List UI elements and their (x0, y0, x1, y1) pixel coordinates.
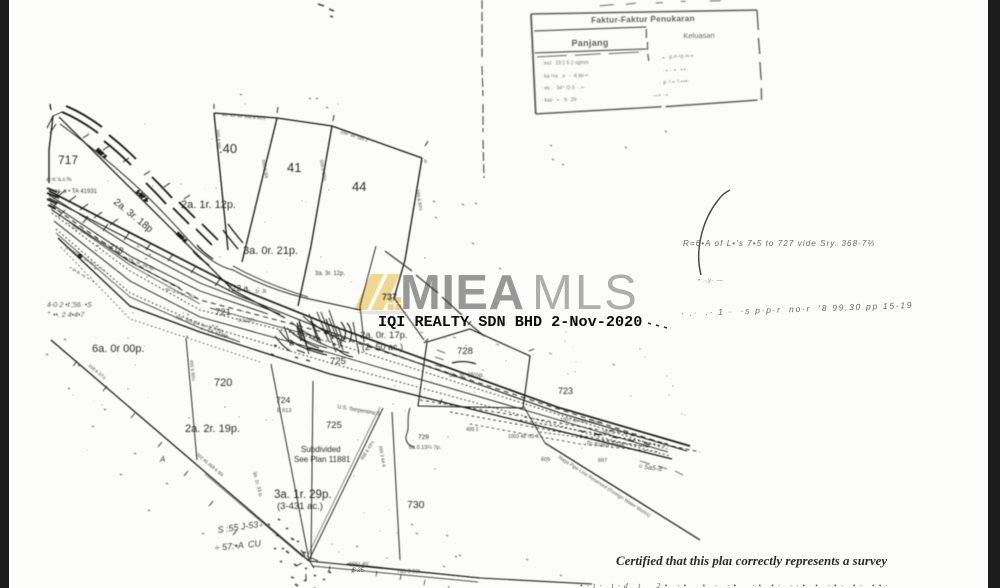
svg-text:722 a.: 722 a. (227, 283, 251, 293)
svg-text:730: 730 (407, 499, 425, 511)
svg-text:+ b: + b (420, 159, 427, 165)
svg-text:499 2: 499 2 (466, 427, 479, 433)
svg-text:al rt.'a.s.%: al rt.'a.s.% (46, 177, 72, 183)
svg-text:0.3.09't.: 0.3.09't. (238, 318, 256, 324)
svg-text:· ek·. 54° ²2·9 · .·•·: · ek·. 54° ²2·9 · .·•· (541, 85, 585, 92)
svg-text:• .·,y· —: • .·,y· — (698, 277, 723, 284)
svg-text:Faktur-Faktur Penukaran: Faktur-Faktur Penukaran (591, 14, 695, 25)
svg-text:282 6: 282 6 (602, 430, 615, 436)
svg-text:3a. 3r. 12p.: 3a. 3r. 12p. (315, 271, 345, 277)
svg-text:728: 728 (457, 346, 473, 357)
svg-text:E 613: E 613 (277, 408, 291, 414)
svg-text:609: 609 (541, 457, 550, 463)
svg-text:Subdivided: Subdivided (301, 445, 341, 454)
svg-text:(3-431 ac.): (3-431 ac.) (277, 501, 323, 512)
svg-text:••. 2 4•4•7: ••. 2 4•4•7 (53, 312, 85, 319)
svg-text:S 25·: S 25· (352, 568, 366, 574)
svg-text:729: 729 (418, 434, 429, 441)
svg-text:724: 724 (276, 395, 290, 405)
svg-text:See Plan 11881: See Plan 11881 (294, 455, 351, 464)
svg-text:Panjang: Panjang (571, 38, 608, 49)
svg-text:Keluasan: Keluasan (683, 31, 714, 41)
svg-text:723: 723 (558, 386, 573, 396)
svg-text:44: 44 (352, 179, 366, 194)
svg-text:3a. 0r. 21p.: 3a. 0r. 21p. (243, 245, 298, 257)
svg-text:1r. 3t: 1r. 3t (255, 289, 267, 295)
svg-text:A: A (159, 455, 165, 464)
svg-text:· ka♯· •· ·9· 29· ·: · ka♯· •· ·9· 29· · (541, 97, 582, 104)
svg-text:721: 721 (215, 307, 231, 318)
svg-text:3a. 3r. 15½p.: 3a. 3r. 15½p. (449, 372, 484, 379)
svg-text:3a. 1r. 29p.: 3a. 1r. 29p. (274, 489, 332, 501)
svg-text:(2- 50 ac.): (2- 50 ac.) (362, 342, 403, 352)
svg-text:2a. 0r. 17p.: 2a. 0r. 17p. (360, 330, 408, 341)
svg-text:720: 720 (214, 377, 232, 389)
svg-text:IQI REALTY SDN BHD 2-Nov-2020: IQI REALTY SDN BHD 2-Nov-2020 (378, 313, 642, 331)
svg-text:MLS: MLS (532, 266, 639, 320)
svg-text:• ·sr· s • TA 41931: • ·sr· s • TA 41931 (49, 189, 98, 195)
svg-text:Certified that this plaı corre: Certified that this plaı correctly repre… (616, 554, 887, 568)
svg-text:· ka·½a .s· ·· ·d ℓsr·•·: · ka·½a .s· ·· ·d ℓsr·•· (541, 72, 589, 80)
svg-text:737: 737 (382, 292, 397, 302)
svg-text:2a. 2r. 19p.: 2a. 2r. 19p. (185, 423, 240, 435)
svg-text:MIEA: MIEA (400, 266, 525, 320)
svg-text:765 8 50t: 765 8 50t (397, 569, 420, 575)
svg-text:1003 48 ½2 3: 1003 48 ½2 3 (508, 433, 539, 440)
svg-text:717: 717 (58, 153, 78, 167)
svg-text:0a.0.13¼ 7p.: 0a.0.13¼ 7p. (409, 445, 442, 451)
svg-text:6a. 0r 00p.: 6a. 0r 00p. (92, 343, 145, 355)
svg-text:4-0·2 •t '56. •S: 4-0·2 •t '56. •S (47, 302, 92, 309)
svg-text:725: 725 (326, 420, 342, 431)
svg-text:· inci 19:1 6.1 sgmm: · inci 19:1 6.1 sgmm (541, 60, 589, 67)
svg-text:41: 41 (287, 160, 301, 175)
svg-text:•·t· t·d t 2• ·• • · ·• ·•: •·t· t·d t 2• ·• • · ·• ·• •· ··• • ·•· … (580, 581, 892, 588)
svg-text:R=6•A of L•'s 7•5 to 727 vide: R=6•A of L•'s 7•5 to 727 vide Sry. 368-7… (683, 239, 875, 248)
svg-text:697: 697 (598, 458, 607, 464)
svg-text:725: 725 (330, 356, 346, 367)
svg-text:—• · •: —• · • (653, 93, 668, 99)
svg-text:2a. 1r. 12p.: 2a. 1r. 12p. (181, 199, 236, 211)
